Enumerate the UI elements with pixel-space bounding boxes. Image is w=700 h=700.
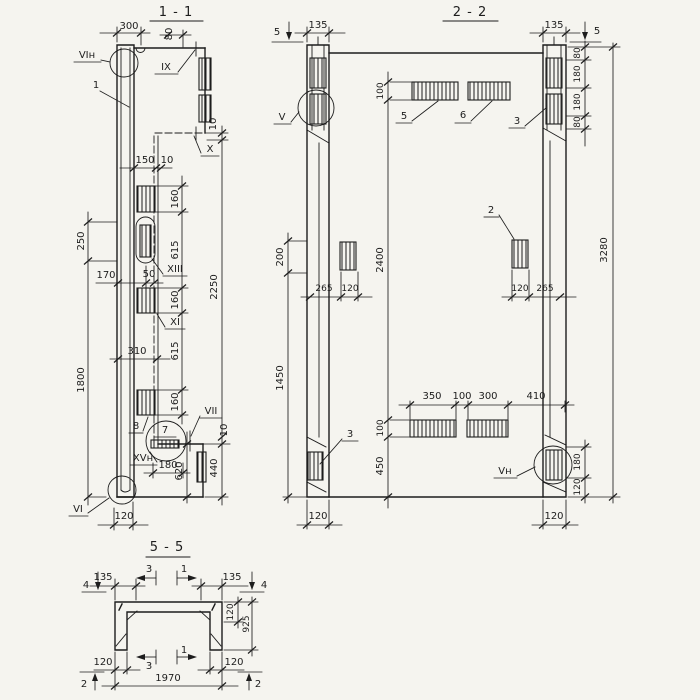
dim-120-bl: 120: [93, 657, 112, 668]
rib-embed: [546, 450, 562, 480]
item-label-3-top: 3: [514, 116, 520, 127]
section-1-1-title: 1 - 1: [159, 5, 194, 20]
dim-10-web: 10: [161, 155, 174, 166]
dim-100-mid: 100: [376, 419, 386, 436]
dim-10-plate: 10: [219, 424, 230, 437]
section-1-1: 1 - 1: [69, 5, 230, 530]
dim-1970: 1970: [155, 673, 180, 684]
rib-embed: [310, 58, 326, 88]
dim-250: 250: [76, 231, 87, 250]
rebar-mark: [212, 604, 215, 610]
dim-615-a: 615: [170, 240, 181, 259]
item-label-5: 5: [401, 111, 407, 122]
edge-embed-plate: [197, 452, 206, 482]
rib-embed: [308, 452, 323, 480]
dim-100-bot: 100: [452, 391, 471, 402]
embed-plate-2: [512, 240, 528, 268]
dim-135-r: 135: [222, 572, 241, 583]
cut-mark-2-right: 2: [255, 679, 261, 690]
dim-265-right: 265: [536, 284, 553, 294]
dim-450: 450: [375, 456, 386, 475]
dim-615-b: 615: [170, 341, 181, 360]
dim-1450: 1450: [275, 365, 286, 390]
edge-embed-plate: [199, 58, 211, 90]
dim-160-c: 160: [170, 392, 181, 411]
detail-label-vn: Vн: [498, 466, 511, 477]
dim-120-right-col: 120: [544, 511, 563, 522]
rib-embed: [546, 94, 562, 124]
section-2-2: 2 - 2 5 5: [272, 5, 620, 529]
embed-plate: [140, 225, 151, 257]
item-label-2: 2: [488, 205, 494, 216]
dim-3280: 3280: [599, 237, 610, 262]
dim-160-a: 160: [170, 189, 181, 208]
dim-2400: 2400: [375, 247, 386, 272]
embed-bar: [410, 420, 456, 437]
detail-label-vi-bottom: VI: [73, 504, 83, 515]
detail-label-x: X: [207, 144, 214, 155]
embed-plate: [137, 186, 155, 212]
section-5-5-dimensions: 135 135 4 4 3 1 3: [80, 564, 267, 690]
dim-120-left-col: 120: [308, 511, 327, 522]
rib-embed: [310, 94, 326, 124]
section-2-2-title: 2 - 2: [453, 5, 488, 20]
dim-10-step: 10: [208, 118, 219, 131]
embed-bar-5: [412, 82, 458, 100]
detail-label-ix: IX: [161, 62, 171, 73]
dim-925: 925: [242, 615, 252, 632]
detail-label-xi: XI: [170, 317, 180, 328]
dim-120-br: 120: [573, 478, 583, 495]
dim-410: 410: [526, 391, 545, 402]
dim-310: 310: [127, 346, 146, 357]
cut-mark-1-bot: 1: [181, 645, 187, 656]
dim-135-left: 135: [308, 20, 327, 31]
section-5-5-title: 5 - 5: [150, 540, 185, 555]
dim-50: 50: [143, 269, 156, 280]
embed-plate: [137, 390, 155, 415]
dim-80: 80: [164, 28, 175, 41]
dim-160-b: 160: [170, 290, 181, 309]
dim-120-side: 120: [226, 603, 236, 620]
dim-200: 200: [275, 247, 286, 266]
detail-circle-vi-bottom: [108, 476, 136, 504]
dim-180-br: 180: [573, 453, 583, 470]
detail-label-vi-top: VIн: [79, 50, 95, 61]
dim-150: 150: [135, 155, 154, 166]
dim-300: 300: [478, 391, 497, 402]
dim-265-left: 265: [315, 284, 332, 294]
rebar-mark: [119, 604, 122, 610]
detail-label-v: V: [279, 112, 286, 123]
dim-100-top: 100: [376, 82, 386, 99]
drawing-canvas: 1 - 1: [0, 0, 700, 700]
cut-mark-5-right: 5: [594, 26, 600, 37]
item-label-7: 7: [162, 425, 168, 436]
section-5-5-outline: [115, 602, 222, 650]
cut-mark-3-bot: 3: [146, 661, 152, 672]
cut-mark-4-right: 4: [261, 580, 267, 591]
dim-80-b: 80: [573, 116, 583, 128]
dim-135-l: 135: [93, 572, 112, 583]
dim-180: 180: [158, 460, 177, 471]
dim-135-right: 135: [544, 20, 563, 31]
item-label-3-bot: 3: [347, 429, 353, 440]
embed-bar: [467, 420, 508, 437]
dim-300: 300: [119, 21, 138, 32]
dim-1800: 1800: [76, 367, 87, 392]
dim-120-br: 120: [224, 657, 243, 668]
base-plate: [151, 440, 179, 448]
dim-180-a: 180: [573, 65, 583, 82]
detail-label-vii: VII: [205, 406, 218, 417]
item-label-6: 6: [460, 110, 466, 121]
cut-mark-2-left: 2: [81, 679, 87, 690]
section-2-2-outline: [298, 37, 572, 497]
cut-mark-4-left: 4: [83, 580, 89, 591]
dim-80-a: 80: [573, 47, 583, 59]
item-label-8: 8: [133, 421, 139, 432]
embed-plate: [340, 242, 356, 270]
dim-350: 350: [422, 391, 441, 402]
dim-180-b: 180: [573, 93, 583, 110]
dim-120-left-sq: 120: [341, 284, 358, 294]
dim-440: 440: [209, 458, 220, 477]
cut-mark-1-top: 1: [181, 564, 187, 575]
drawing-sheet: 1 - 1: [0, 0, 700, 700]
rib-embed: [546, 58, 562, 88]
section-5-5: 5 - 5 135 135 4 4: [80, 540, 267, 690]
dim-170: 170: [96, 270, 115, 281]
cut-mark-3-top: 3: [146, 564, 152, 575]
dim-2250: 2250: [209, 274, 220, 299]
cut-mark-5-left: 5: [274, 27, 280, 38]
dim-120: 120: [114, 511, 133, 522]
section-1-1-outline: [108, 42, 211, 504]
dim-120-right-sq: 120: [511, 284, 528, 294]
detail-label-xv: XVн: [133, 453, 153, 464]
embed-plate: [137, 288, 155, 313]
detail-label-xiii: XIII: [167, 264, 183, 275]
item-label-1: 1: [93, 80, 99, 91]
embed-bar-6: [468, 82, 510, 100]
